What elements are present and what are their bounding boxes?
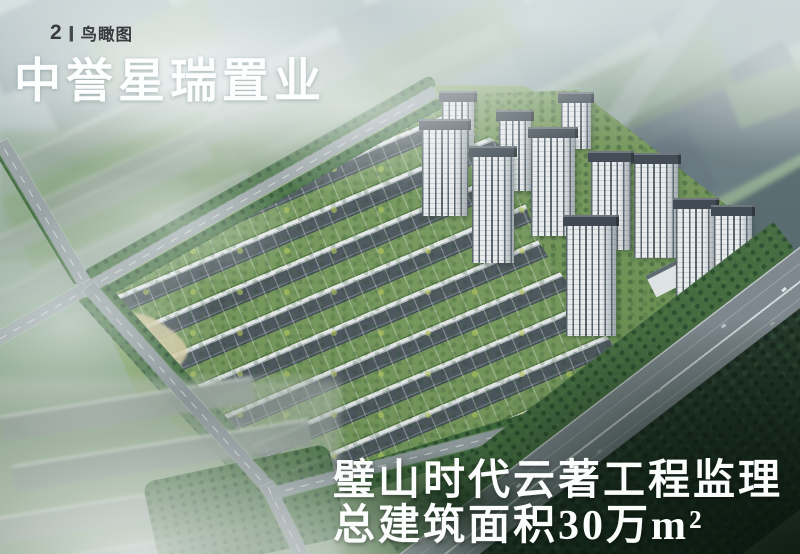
aerial-rendering: 2 | 鸟瞰图 中誉星瑞置业 璧山时代云著工程监理 总建筑面积30万m² — [0, 0, 800, 554]
project-area: 总建筑面积30万m² — [333, 491, 705, 552]
company-title: 中誉星瑞置业 — [14, 42, 326, 111]
label-divider: | — [67, 23, 74, 43]
